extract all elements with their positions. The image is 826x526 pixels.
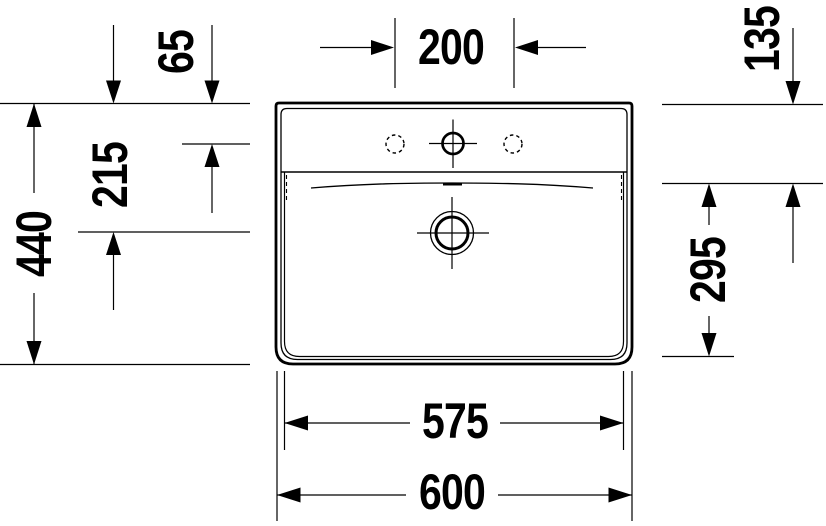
- basin-inner-rim: [281, 109, 627, 360]
- arrowhead-135-top: [786, 81, 801, 105]
- arrowhead-200-right: [515, 40, 538, 55]
- arrowhead-440-up: [27, 104, 42, 128]
- dim-label-600: 600: [419, 467, 485, 517]
- dim-label-295: 295: [683, 237, 733, 303]
- arrowhead-575-right: [600, 416, 624, 431]
- dimension-65: [205, 25, 220, 213]
- extension-lines-right: [662, 105, 823, 357]
- tap-hole-left-optional: [386, 135, 404, 153]
- technical-drawing-canvas: 65 200 135 215 440 295 575 600: [0, 0, 826, 526]
- arrowhead-295-top: [702, 184, 717, 208]
- dim-label-65: 65: [151, 30, 201, 74]
- arrowhead-135-bottom: [786, 184, 801, 208]
- arrowhead-295-bottom: [702, 333, 717, 357]
- arrowhead-215-bottom: [106, 232, 121, 255]
- dim-label-200: 200: [418, 22, 484, 72]
- arrowhead-575-left: [285, 416, 309, 431]
- arrowhead-200-left: [371, 40, 394, 55]
- arrowhead-65-top: [205, 81, 220, 104]
- arrowhead-600-right: [609, 488, 633, 503]
- tap-holes: [386, 120, 522, 169]
- dim-label-215: 215: [85, 142, 135, 208]
- arrowhead-65-bottom: [205, 144, 220, 167]
- drain: [417, 197, 489, 269]
- dim-label-440: 440: [9, 211, 59, 277]
- tap-hole-right-optional: [504, 135, 522, 153]
- dim-label-135: 135: [737, 6, 787, 72]
- arrowhead-600-left: [277, 488, 301, 503]
- dim-label-575: 575: [422, 396, 488, 446]
- arrowhead-215-top: [106, 81, 121, 104]
- arrowhead-440-down: [27, 341, 42, 365]
- basin-inner-edge: [285, 172, 624, 357]
